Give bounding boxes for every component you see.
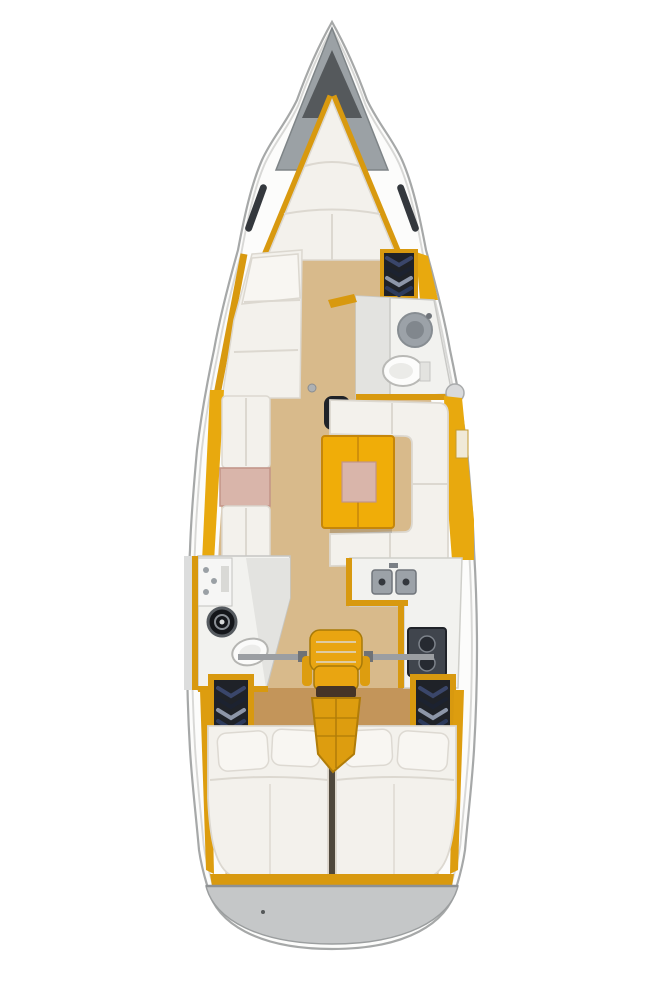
- panel-knob: [203, 567, 209, 573]
- forward-head-trim: [356, 394, 452, 400]
- lounge-pillow: [242, 254, 300, 304]
- forward-head-toilet-tank: [420, 362, 430, 381]
- sink-drain-left: [379, 579, 386, 586]
- seat-base-band: [316, 686, 356, 698]
- aft-head-trim-left: [192, 556, 198, 690]
- bulkhead-rail-starboard: [368, 654, 434, 660]
- forward-head-sink-basin: [406, 321, 424, 339]
- stove-burner-1: [419, 636, 435, 652]
- saloon-port-settees: [202, 390, 270, 562]
- starboard-berth-pillow: [397, 730, 450, 771]
- galley-trim-column: [398, 606, 404, 688]
- forward-head-faucet: [426, 313, 432, 319]
- transom-drain: [261, 910, 265, 914]
- port-saloon-table: [220, 468, 270, 506]
- panel-slot: [221, 566, 229, 592]
- panel-knob: [203, 589, 209, 595]
- boat-floor-plan: [0, 0, 664, 988]
- saloon-table-inset: [342, 462, 376, 502]
- stern-trim-band: [210, 874, 454, 886]
- galley-trim-bottom: [346, 600, 408, 606]
- forward-head-shower: [356, 296, 390, 398]
- forward-head-toilet-seat: [389, 363, 413, 379]
- aft-head-sink-drain: [220, 620, 225, 625]
- port-berth-pillow: [271, 729, 321, 767]
- mast-step: [308, 384, 316, 392]
- bulkhead-rail-port: [238, 654, 304, 660]
- panel-knob: [211, 578, 217, 584]
- galley-trim-left: [346, 558, 352, 606]
- boat-floor-plan-page: [0, 0, 664, 988]
- port-berth-pillow: [217, 730, 270, 771]
- sink-drain-right: [403, 579, 410, 586]
- galley-faucet: [389, 563, 398, 568]
- cabinet-locker-door: [456, 430, 468, 458]
